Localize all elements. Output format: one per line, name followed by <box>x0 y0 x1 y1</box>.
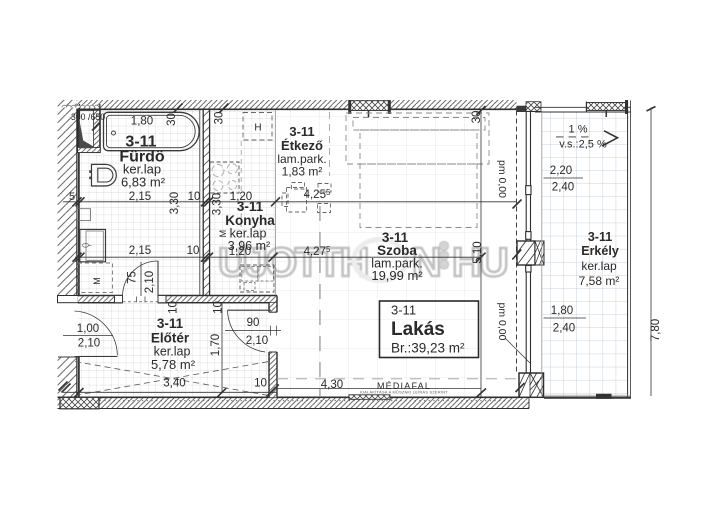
svg-text:1 %: 1 % <box>569 124 588 136</box>
svg-text:Étkező: Étkező <box>281 138 323 153</box>
svg-text:2,15: 2,15 <box>129 191 151 203</box>
svg-text:1,70: 1,70 <box>210 334 222 356</box>
svg-text:7,58 m²: 7,58 m² <box>579 274 620 288</box>
svg-text:10: 10 <box>168 301 180 314</box>
svg-text:3,30: 3,30 <box>169 192 181 214</box>
svg-text:pm 0,00: pm 0,00 <box>496 160 508 198</box>
svg-text:1,20: 1,20 <box>229 246 251 258</box>
svg-text:5,10: 5,10 <box>472 241 484 263</box>
svg-text:2,15: 2,15 <box>129 245 151 257</box>
svg-text:MÉDIAFAL: MÉDIAFAL <box>377 381 431 391</box>
svg-text:2,10: 2,10 <box>78 338 100 350</box>
svg-text:M: M <box>92 277 102 285</box>
svg-text:90: 90 <box>247 317 260 329</box>
svg-text:1,83 m²: 1,83 m² <box>282 165 323 179</box>
svg-text:2,10: 2,10 <box>246 335 268 347</box>
svg-text:KIALAKÍTÁSA A MŰSZAKI LEÍRÁS S: KIALAKÍTÁSA A MŰSZAKI LEÍRÁS SZERINT <box>360 389 448 394</box>
svg-text:2,10: 2,10 <box>144 271 156 293</box>
svg-text:3,30: 3,30 <box>212 193 224 215</box>
svg-text:3-11: 3-11 <box>391 303 416 318</box>
svg-text:Erkély: Erkély <box>581 244 619 258</box>
svg-text:1,80: 1,80 <box>131 116 153 128</box>
svg-text:5,78 m²: 5,78 m² <box>151 357 196 372</box>
svg-text:1,20: 1,20 <box>230 191 252 203</box>
svg-text:Lakás: Lakás <box>391 319 445 340</box>
svg-text:10: 10 <box>254 378 267 390</box>
svg-text:1,00: 1,00 <box>77 323 99 335</box>
svg-text:2,20: 2,20 <box>550 165 572 177</box>
svg-text:1,80: 1,80 <box>551 305 573 317</box>
svg-text:19,99 m²: 19,99 m² <box>371 268 423 283</box>
svg-text:3-11: 3-11 <box>588 230 612 244</box>
svg-text:ker.lap: ker.lap <box>581 259 617 273</box>
svg-text:Előtér: Előtér <box>151 331 190 346</box>
svg-text:v.s.:2,5 %: v.s.:2,5 % <box>559 139 607 151</box>
svg-text:3-11: 3-11 <box>289 124 314 139</box>
svg-text:3-11: 3-11 <box>157 316 184 331</box>
svg-text:M: M <box>218 230 228 238</box>
svg-text:30: 30 <box>471 111 483 124</box>
svg-text:10: 10 <box>188 191 201 203</box>
svg-text:10: 10 <box>213 301 225 314</box>
svg-text:300 /650: 300 /650 <box>71 112 105 122</box>
svg-text:6,83 m²: 6,83 m² <box>121 175 166 190</box>
svg-text:30: 30 <box>166 113 178 126</box>
svg-text:10: 10 <box>187 245 200 257</box>
svg-text:3,40: 3,40 <box>163 378 185 390</box>
svg-text:H: H <box>254 123 261 134</box>
svg-text:4,30: 4,30 <box>321 379 343 391</box>
svg-text:5: 5 <box>69 191 75 203</box>
svg-text:7,80: 7,80 <box>650 319 662 341</box>
svg-text:Br.:39,23 m²: Br.:39,23 m² <box>391 341 465 356</box>
svg-text:2,40: 2,40 <box>553 323 575 335</box>
svg-text:75: 75 <box>127 271 139 284</box>
svg-text:pm 0,00: pm 0,00 <box>496 303 508 341</box>
svg-text:30: 30 <box>214 112 226 125</box>
svg-text:2,40: 2,40 <box>552 182 574 194</box>
